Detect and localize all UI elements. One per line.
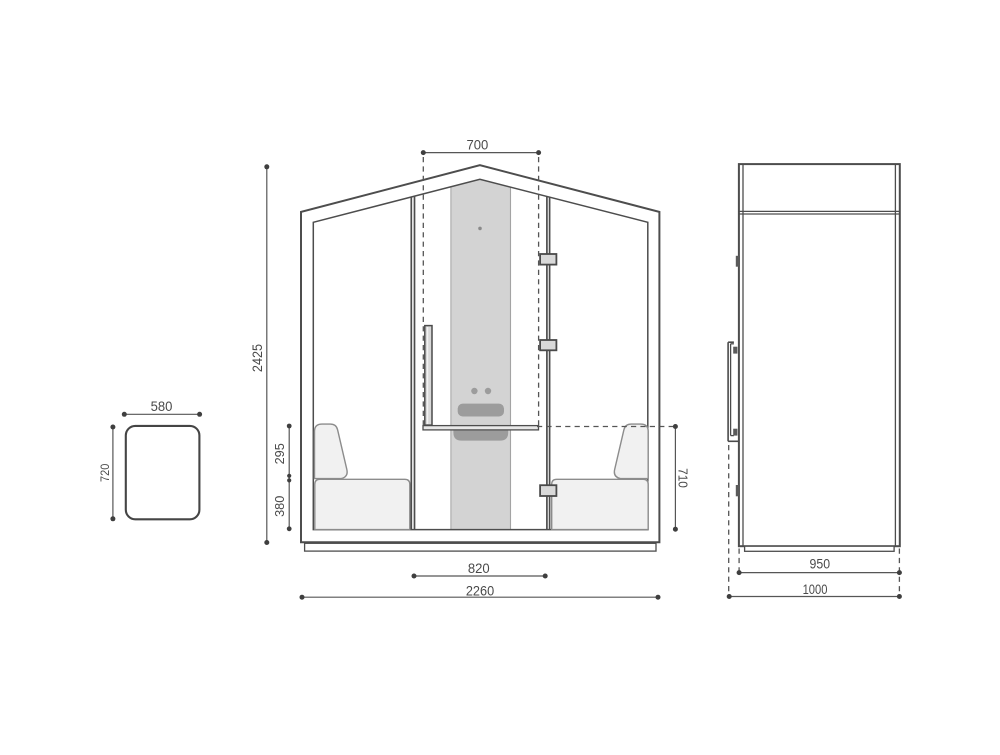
svg-text:1000: 1000 <box>803 582 828 598</box>
svg-text:2260: 2260 <box>466 583 494 599</box>
svg-text:710: 710 <box>675 468 690 488</box>
svg-text:380: 380 <box>272 496 287 517</box>
svg-text:700: 700 <box>467 137 489 153</box>
svg-text:295: 295 <box>272 443 287 464</box>
svg-text:580: 580 <box>151 399 173 415</box>
svg-text:950: 950 <box>810 557 831 573</box>
svg-text:720: 720 <box>98 464 112 482</box>
svg-text:820: 820 <box>468 561 490 577</box>
svg-text:2425: 2425 <box>250 344 265 372</box>
